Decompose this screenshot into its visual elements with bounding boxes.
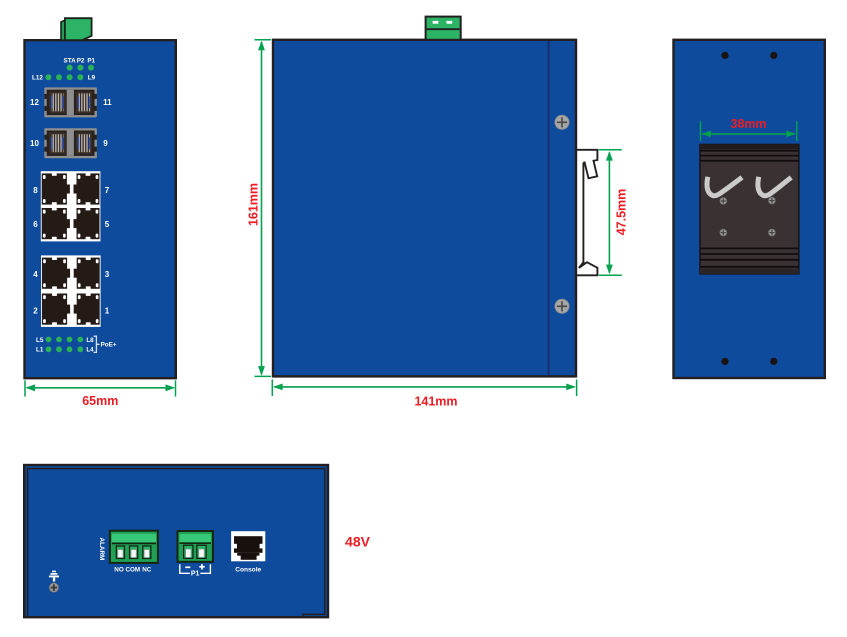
svg-text:9: 9 <box>103 139 108 148</box>
svg-text:5: 5 <box>105 220 110 229</box>
svg-text:4: 4 <box>33 270 38 279</box>
svg-text:L12: L12 <box>32 75 43 82</box>
svg-text:L4: L4 <box>86 347 94 354</box>
svg-text:L8: L8 <box>86 337 94 344</box>
svg-text:3: 3 <box>105 270 110 279</box>
svg-text:6: 6 <box>33 220 38 229</box>
svg-text:L9: L9 <box>88 75 96 82</box>
svg-text:161mm: 161mm <box>246 183 260 226</box>
svg-text:47.5mm: 47.5mm <box>615 189 629 236</box>
svg-text:L1: L1 <box>36 347 44 354</box>
svg-text:12: 12 <box>30 98 39 107</box>
svg-text:48V: 48V <box>345 533 371 549</box>
svg-text:P1: P1 <box>87 58 95 65</box>
svg-text:NO: NO <box>114 566 124 573</box>
svg-text:65mm: 65mm <box>82 394 118 408</box>
svg-text:8: 8 <box>33 186 38 195</box>
svg-text:P2: P2 <box>77 58 85 65</box>
svg-text:38mm: 38mm <box>731 117 767 131</box>
svg-text:Console: Console <box>235 566 261 573</box>
svg-text:NC: NC <box>142 566 152 573</box>
svg-text:2: 2 <box>33 306 38 315</box>
svg-text:STA: STA <box>64 58 77 65</box>
svg-text:PoE+: PoE+ <box>101 342 117 349</box>
svg-text:L5: L5 <box>36 337 44 344</box>
svg-text:11: 11 <box>103 98 112 107</box>
svg-text:10: 10 <box>30 139 39 148</box>
svg-text:141mm: 141mm <box>414 394 457 408</box>
svg-text:7: 7 <box>105 186 110 195</box>
svg-text:1: 1 <box>105 306 110 315</box>
svg-text:COM: COM <box>125 566 140 573</box>
svg-text:P1: P1 <box>191 571 200 578</box>
svg-text:ALARM: ALARM <box>98 538 105 561</box>
